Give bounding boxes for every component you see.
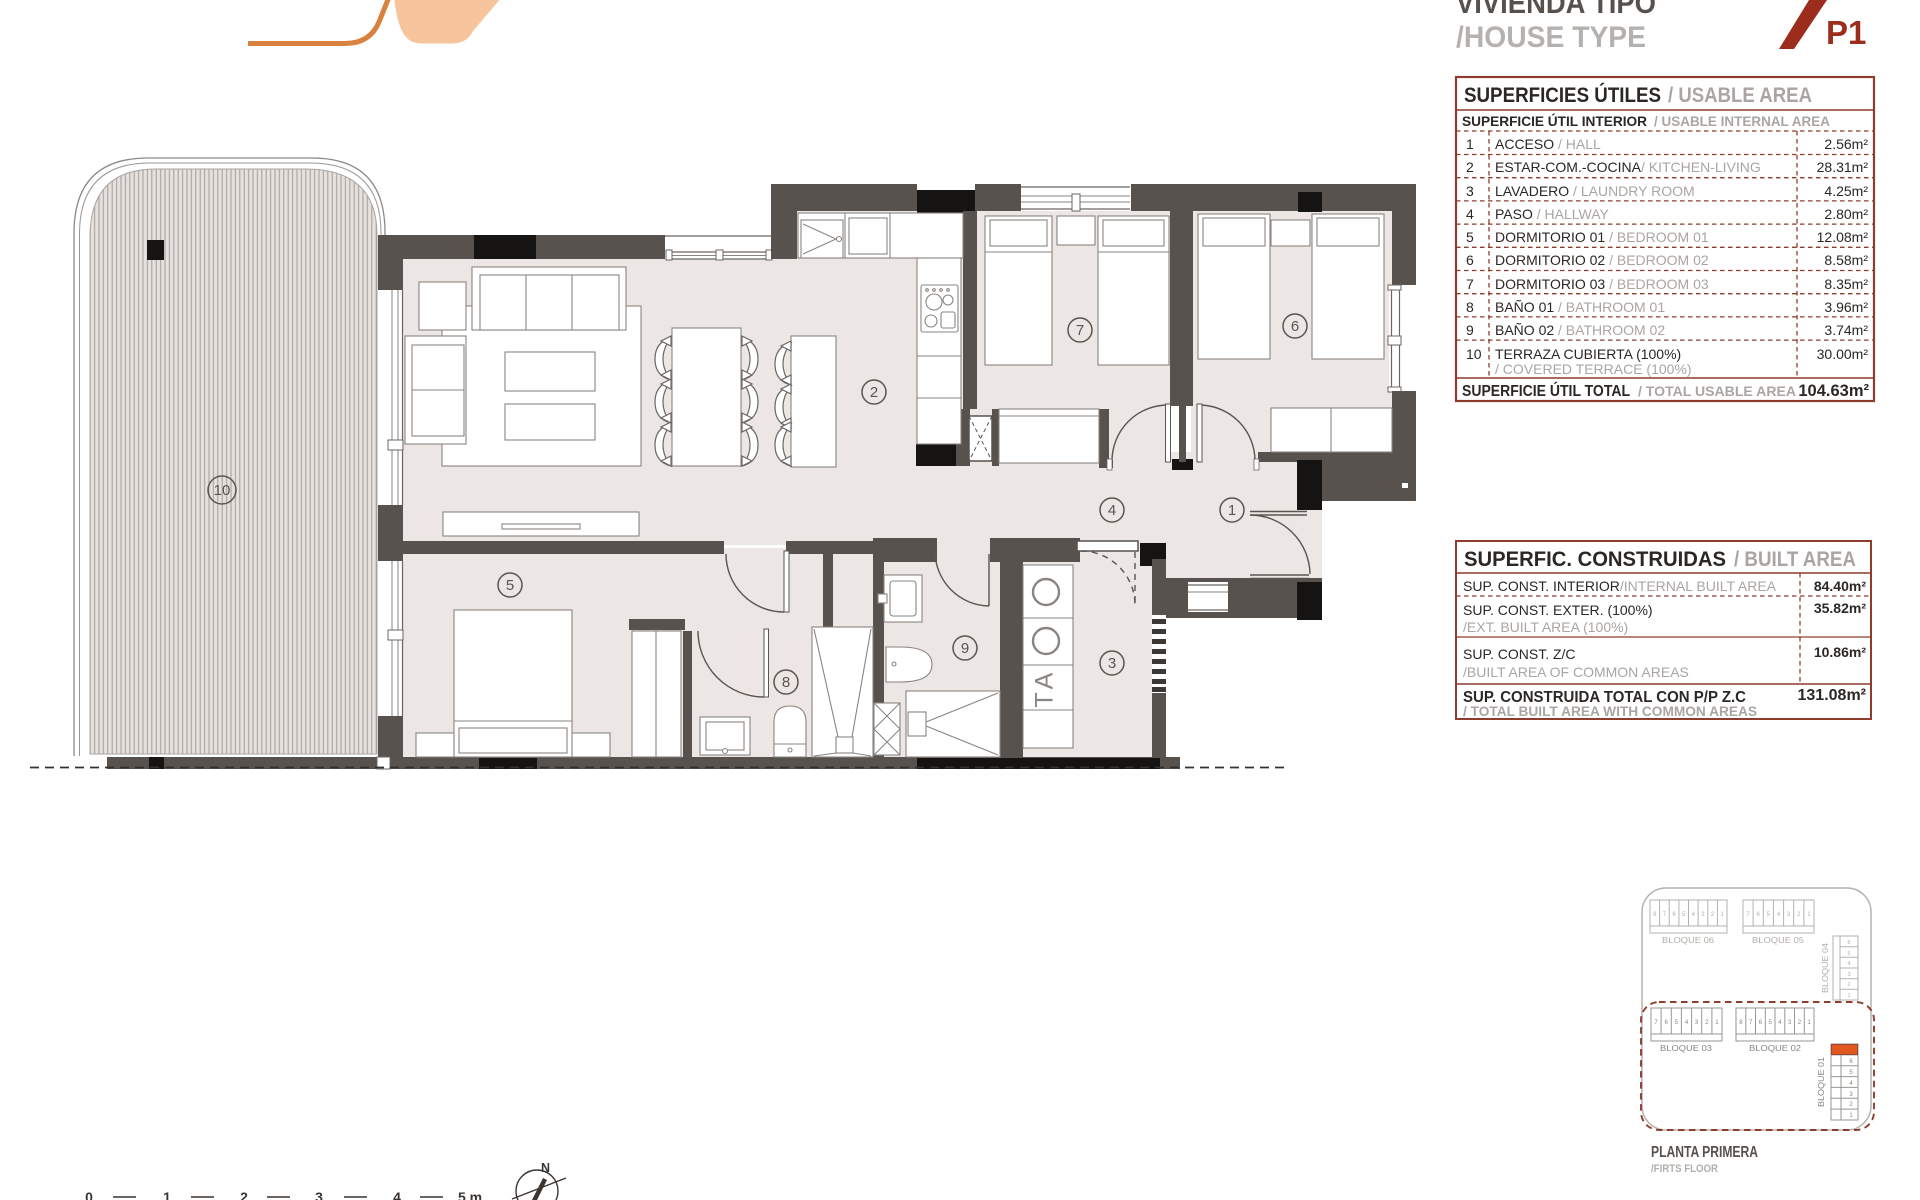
svg-text:4: 4 xyxy=(1466,206,1474,222)
svg-text:131.08m²: 131.08m² xyxy=(1798,687,1867,704)
svg-text:4: 4 xyxy=(1847,961,1850,967)
svg-text:BLOQUE 02: BLOQUE 02 xyxy=(1749,1043,1801,1053)
svg-text:T: T xyxy=(1031,692,1059,707)
svg-text:2.80m²: 2.80m² xyxy=(1824,206,1868,222)
svg-text:6: 6 xyxy=(1291,318,1299,335)
svg-text:4: 4 xyxy=(1108,502,1116,519)
svg-text:/ TOTAL USABLE AREA: / TOTAL USABLE AREA xyxy=(1638,383,1796,399)
svg-text:/BUILT AREA OF COMMON AREAS: /BUILT AREA OF COMMON AREAS xyxy=(1463,664,1689,680)
svg-text:8.35m²: 8.35m² xyxy=(1824,276,1868,292)
svg-text:SUP. CONST. INTERIOR/INTERNAL: SUP. CONST. INTERIOR/INTERNAL BUILT AREA xyxy=(1463,578,1777,594)
svg-text:ESTAR-COM.-COCINA/ KITCHEN-LIV: ESTAR-COM.-COCINA/ KITCHEN-LIVING xyxy=(1495,159,1761,175)
svg-text:SUPERFICIE ÚTIL TOTAL: SUPERFICIE ÚTIL TOTAL xyxy=(1462,382,1630,400)
svg-text:BLOQUE 01: BLOQUE 01 xyxy=(1816,1057,1826,1107)
svg-text:/ TOTAL BUILT AREA WITH COMMON: / TOTAL BUILT AREA WITH COMMON AREAS xyxy=(1463,704,1757,719)
svg-text:DORMITORIO 01 / BEDROOM 01: DORMITORIO 01 / BEDROOM 01 xyxy=(1495,229,1709,245)
svg-text:SUPERFIC. CONSTRUIDAS: SUPERFIC. CONSTRUIDAS xyxy=(1464,547,1726,571)
svg-text:4.25m²: 4.25m² xyxy=(1824,183,1868,199)
svg-text:8: 8 xyxy=(1466,299,1474,315)
svg-text:/ USABLE INTERNAL AREA: / USABLE INTERNAL AREA xyxy=(1654,113,1830,129)
svg-text:/ USABLE AREA: / USABLE AREA xyxy=(1668,83,1812,107)
svg-text:2: 2 xyxy=(240,1189,248,1200)
svg-text:3.74m²: 3.74m² xyxy=(1824,322,1868,338)
svg-text:7: 7 xyxy=(1076,322,1084,339)
svg-text:/EXT. BUILT AREA (100%): /EXT. BUILT AREA (100%) xyxy=(1463,619,1628,635)
svg-text:PLANTA PRIMERA: PLANTA PRIMERA xyxy=(1651,1144,1758,1161)
svg-text:PASO / HALLWAY: PASO / HALLWAY xyxy=(1495,206,1610,222)
svg-text:N: N xyxy=(541,1161,550,1175)
svg-text:3.96m²: 3.96m² xyxy=(1824,299,1868,315)
svg-text:2.56m²: 2.56m² xyxy=(1824,136,1868,152)
svg-text:2: 2 xyxy=(1466,159,1474,175)
svg-text:10.86m²: 10.86m² xyxy=(1814,644,1866,660)
svg-text:8: 8 xyxy=(782,674,790,691)
svg-text:SUPERFICIE ÚTIL INTERIOR: SUPERFICIE ÚTIL INTERIOR xyxy=(1462,112,1647,129)
svg-text:9: 9 xyxy=(1466,322,1474,338)
svg-text:28.31m²: 28.31m² xyxy=(1817,159,1869,175)
svg-text:8.58m²: 8.58m² xyxy=(1824,252,1868,268)
svg-text:DORMITORIO 03 / BEDROOM 03: DORMITORIO 03 / BEDROOM 03 xyxy=(1495,276,1709,292)
svg-text:3: 3 xyxy=(1108,655,1116,672)
svg-text:ACCESO / HALL: ACCESO / HALL xyxy=(1495,136,1601,152)
svg-text:/ COVERED TERRACE (100%): / COVERED TERRACE (100%) xyxy=(1495,361,1692,377)
svg-text:10: 10 xyxy=(214,482,231,499)
svg-text:/HOUSE TYPE: /HOUSE TYPE xyxy=(1456,21,1646,54)
svg-text:3: 3 xyxy=(315,1189,323,1200)
svg-text:3: 3 xyxy=(1466,183,1474,199)
svg-text:BLOQUE 04: BLOQUE 04 xyxy=(1820,943,1830,993)
svg-text:BLOQUE 06: BLOQUE 06 xyxy=(1662,935,1714,945)
svg-text:BLOQUE 05: BLOQUE 05 xyxy=(1752,935,1804,945)
svg-text:5: 5 xyxy=(1847,951,1850,957)
svg-text:10: 10 xyxy=(1466,346,1482,362)
svg-text:BAÑO 02 / BATHROOM 02: BAÑO 02 / BATHROOM 02 xyxy=(1495,322,1665,338)
svg-text:6: 6 xyxy=(1847,940,1850,946)
svg-text:SUP. CONST. Z/C: SUP. CONST. Z/C xyxy=(1463,646,1576,662)
svg-text:A: A xyxy=(1031,672,1059,689)
svg-text:2: 2 xyxy=(1847,982,1850,988)
svg-text:3: 3 xyxy=(1847,972,1850,978)
svg-text:35.82m²: 35.82m² xyxy=(1814,600,1866,616)
svg-text:VIVIENDA TIPO: VIVIENDA TIPO xyxy=(1456,0,1656,20)
svg-text:/FIRTS FLOOR: /FIRTS FLOOR xyxy=(1651,1163,1718,1175)
svg-text:0: 0 xyxy=(85,1189,93,1200)
svg-text:BLOQUE 03: BLOQUE 03 xyxy=(1660,1043,1712,1053)
svg-text:5: 5 xyxy=(1466,229,1474,245)
svg-text:1: 1 xyxy=(1228,502,1236,519)
svg-text:P1: P1 xyxy=(1826,14,1866,51)
svg-text:9: 9 xyxy=(961,640,969,657)
svg-text:104.63m²: 104.63m² xyxy=(1798,382,1869,400)
svg-text:1: 1 xyxy=(163,1189,171,1200)
svg-text:DORMITORIO 02 / BEDROOM 02: DORMITORIO 02 / BEDROOM 02 xyxy=(1495,252,1709,268)
svg-text:TERRAZA CUBIERTA (100%): TERRAZA CUBIERTA (100%) xyxy=(1495,346,1681,362)
svg-text:1: 1 xyxy=(1466,136,1474,152)
svg-text:5: 5 xyxy=(506,577,514,594)
svg-text:4: 4 xyxy=(393,1189,401,1200)
svg-text:BAÑO 01 / BATHROOM 01: BAÑO 01 / BATHROOM 01 xyxy=(1495,299,1665,315)
svg-text:12.08m²: 12.08m² xyxy=(1817,229,1869,245)
svg-text:LAVADERO / LAUNDRY ROOM: LAVADERO / LAUNDRY ROOM xyxy=(1495,183,1695,199)
svg-text:6: 6 xyxy=(1466,252,1474,268)
svg-text:30.00m²: 30.00m² xyxy=(1817,346,1869,362)
svg-text:/ BUILT AREA: / BUILT AREA xyxy=(1734,547,1856,571)
svg-text:1: 1 xyxy=(1847,993,1850,999)
svg-text:2: 2 xyxy=(870,384,878,401)
svg-text:SUP. CONST. EXTER. (100%): SUP. CONST. EXTER. (100%) xyxy=(1463,602,1653,618)
svg-text:5 m: 5 m xyxy=(458,1189,482,1200)
svg-text:SUPERFICIES ÚTILES: SUPERFICIES ÚTILES xyxy=(1464,82,1661,107)
svg-text:84.40m²: 84.40m² xyxy=(1814,578,1866,594)
svg-text:7: 7 xyxy=(1466,276,1474,292)
